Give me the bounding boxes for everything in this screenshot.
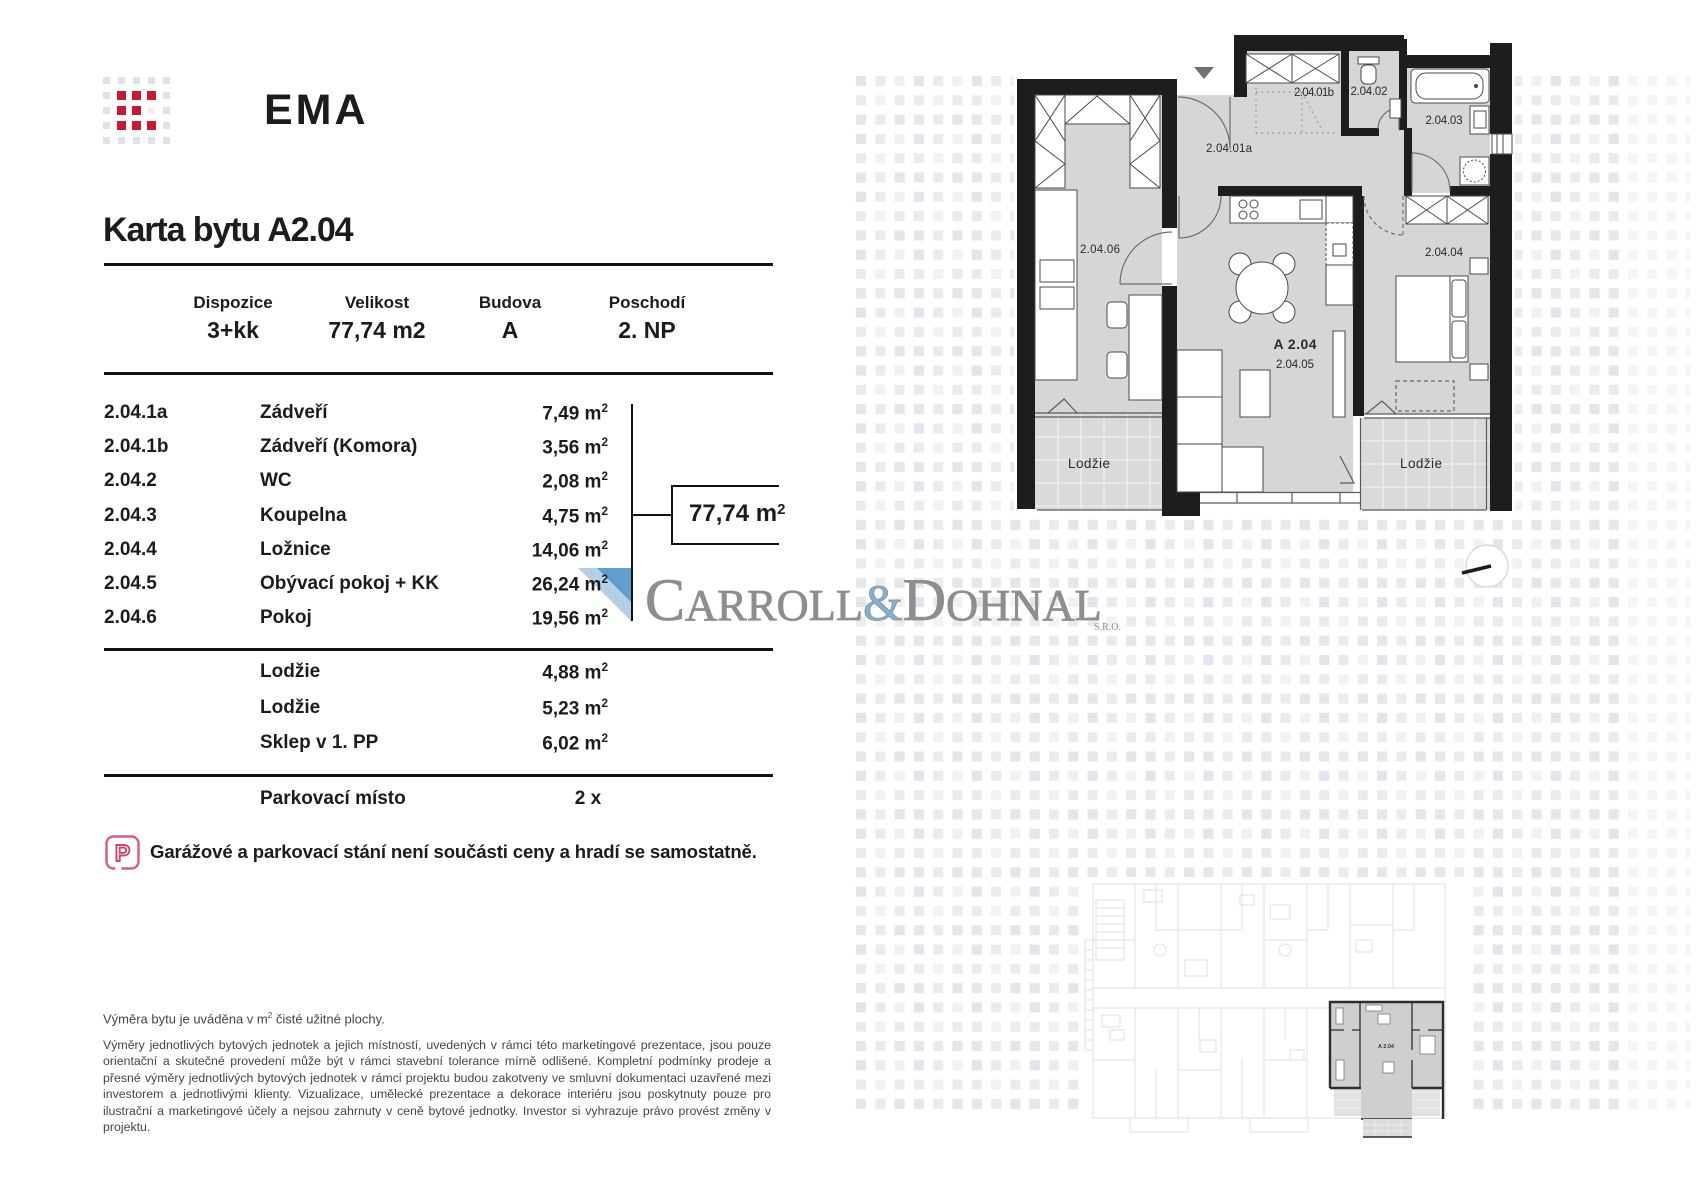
svg-text:2.04.05: 2.04.05 bbox=[1276, 359, 1314, 371]
svg-text:2.04.01b: 2.04.01b bbox=[1294, 87, 1334, 99]
svg-text:2.04.04: 2.04.04 bbox=[1425, 247, 1464, 259]
svg-text:2.04.06: 2.04.06 bbox=[1080, 244, 1120, 256]
svg-text:A 2.04: A 2.04 bbox=[1274, 336, 1317, 352]
svg-text:2.04.03: 2.04.03 bbox=[1426, 115, 1463, 127]
svg-text:S.R.O.: S.R.O. bbox=[1094, 622, 1121, 633]
svg-text:Lodžie: Lodžie bbox=[1400, 456, 1442, 471]
svg-text:P: P bbox=[115, 840, 130, 866]
svg-text:2.04.01a: 2.04.01a bbox=[1206, 143, 1253, 155]
svg-text:A 2.04: A 2.04 bbox=[1378, 1044, 1395, 1050]
svg-text:2.04.02: 2.04.02 bbox=[1351, 86, 1388, 98]
svg-text:Lodžie: Lodžie bbox=[1068, 456, 1110, 471]
